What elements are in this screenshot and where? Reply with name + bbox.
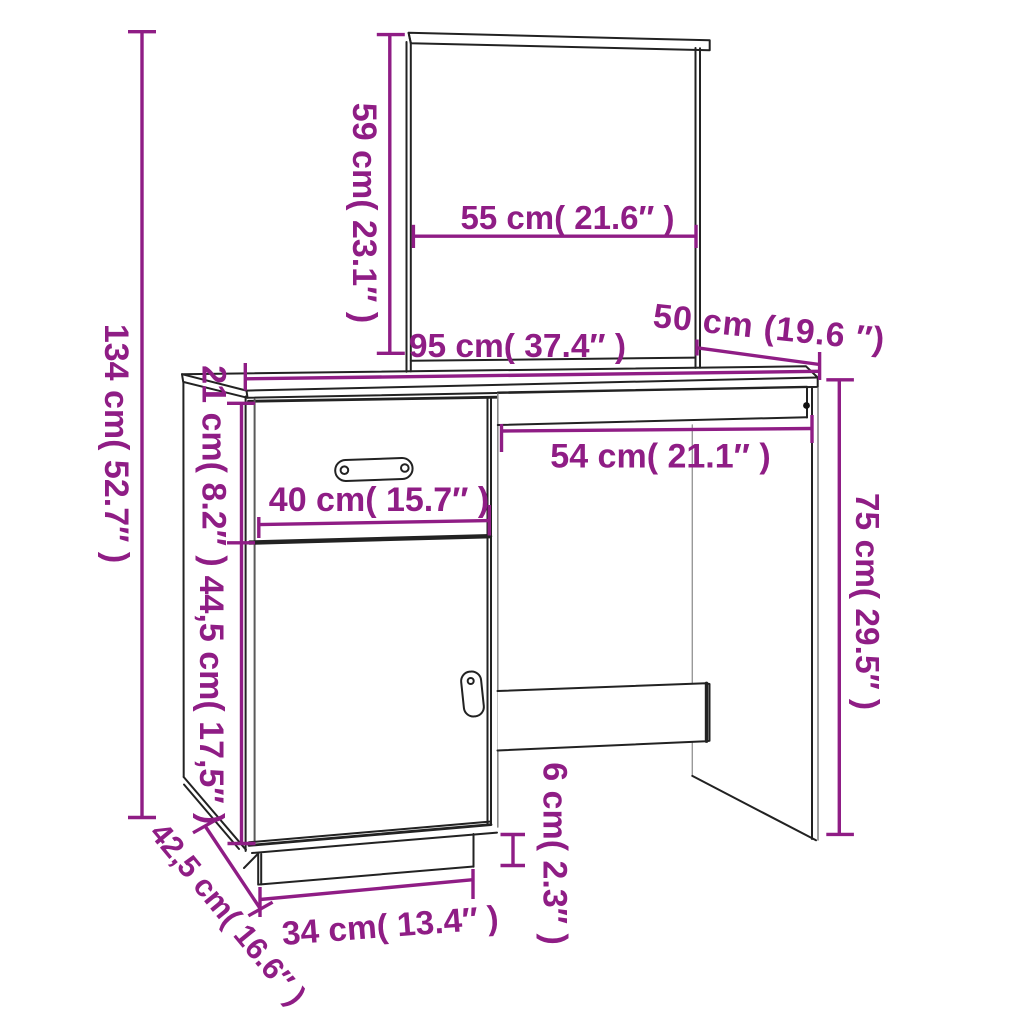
svg-text:44,5 cm( 17,5″ ): 44,5 cm( 17,5″ ) <box>192 576 230 825</box>
svg-text:54 cm( 21.1″ ): 54 cm( 21.1″ ) <box>550 437 770 475</box>
svg-text:134 cm( 52.7″ ): 134 cm( 52.7″ ) <box>97 324 135 563</box>
svg-text:75 cm( 29.5″ ): 75 cm( 29.5″ ) <box>848 493 885 710</box>
svg-text:21 cm( 8.2″ ): 21 cm( 8.2″ ) <box>195 365 233 567</box>
svg-text:95 cm( 37.4″ ): 95 cm( 37.4″ ) <box>409 328 626 365</box>
svg-text:59 cm( 23.1″ ): 59 cm( 23.1″ ) <box>345 103 383 323</box>
svg-text:40 cm( 15.7″ ): 40 cm( 15.7″ ) <box>269 481 489 519</box>
svg-text:55 cm( 21.6″ ): 55 cm( 21.6″ ) <box>461 199 675 236</box>
svg-text:6 cm( 2.3″ ): 6 cm( 2.3″ ) <box>536 762 574 945</box>
